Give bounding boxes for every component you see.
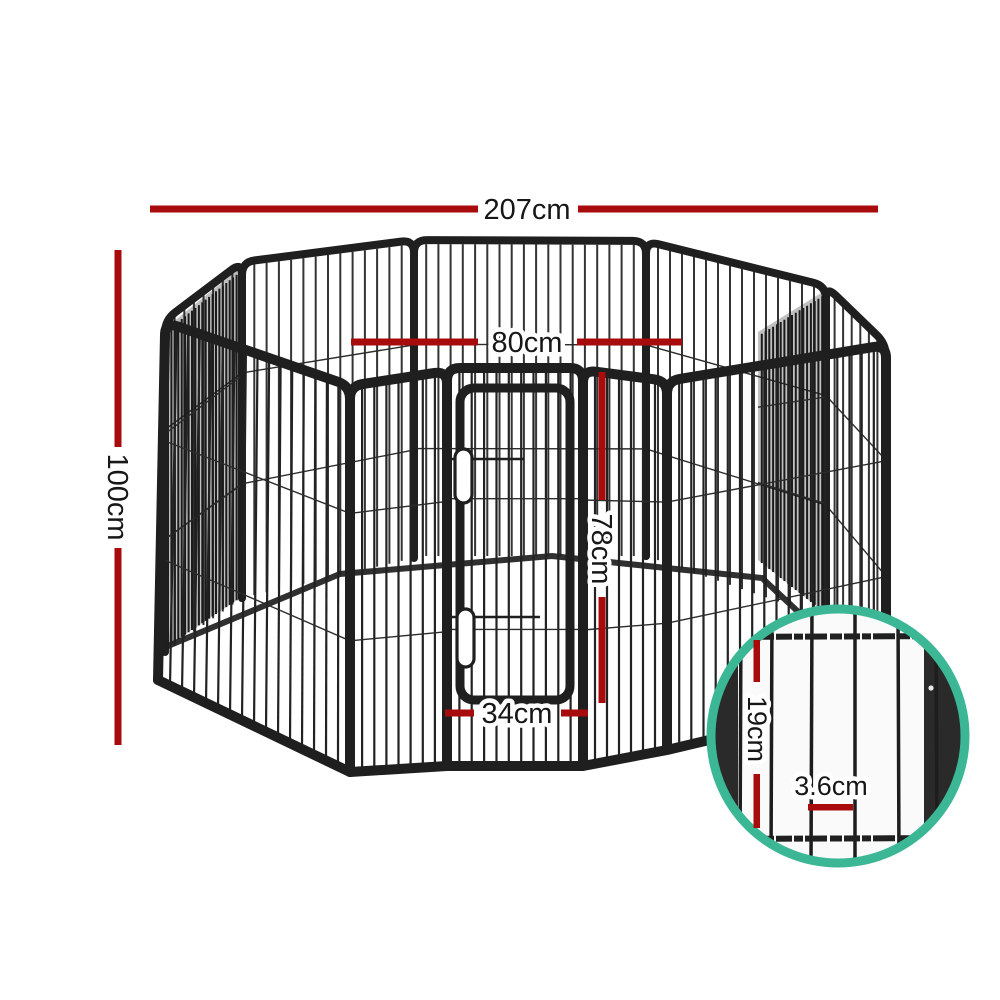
- detail-wire-gap-label: 3.6cm: [794, 771, 868, 801]
- playpen-dimension-diagram: 207cm 100cm 80cm 78cm 34cm: [0, 0, 1000, 1000]
- dim-door-height: 78cm: [585, 372, 617, 703]
- dim-line: [754, 640, 761, 682]
- dim-panel-width: 80cm: [351, 327, 682, 359]
- detail-rail-spacing-label: 19cm: [742, 696, 772, 762]
- door-frame: [460, 388, 570, 700]
- diagram-canvas: 207cm 100cm 80cm 78cm 34cm: [0, 0, 1000, 1000]
- dim-line: [150, 206, 478, 213]
- detail-wire-bar: [936, 610, 937, 864]
- detail-rail-top: [708, 636, 968, 637]
- mesh-wire: [314, 378, 315, 755]
- detail-rail-bottom: [708, 838, 968, 839]
- dim-line: [808, 804, 853, 811]
- total-width-label: 207cm: [483, 194, 570, 226]
- detail-wire-bar: [811, 606, 812, 866]
- mesh-wire: [326, 382, 327, 761]
- door-latch-bottom: [449, 609, 540, 667]
- dim-line: [599, 372, 606, 500]
- dim-line: [578, 206, 878, 213]
- dim-line: [561, 710, 588, 717]
- dim-line: [115, 548, 122, 745]
- dim-total-width: 207cm: [150, 194, 878, 226]
- dim-line: [115, 250, 122, 447]
- dim-total-height: 100cm: [101, 250, 133, 745]
- door-width-label: 34cm: [482, 698, 553, 730]
- dim-line: [577, 339, 682, 346]
- dim-line: [445, 710, 474, 717]
- detail-zoom-circle: 19cm 3.6cm: [686, 598, 978, 876]
- dim-line: [754, 774, 761, 828]
- mesh-wire: [302, 374, 304, 749]
- dim-line: [599, 597, 606, 703]
- panel-width-label: 80cm: [492, 327, 563, 359]
- latch-handle: [455, 449, 472, 503]
- door-height-label: 78cm: [585, 514, 617, 585]
- detail-wire-bar: [898, 608, 899, 864]
- latch-handle: [457, 609, 474, 667]
- total-height-label: 100cm: [101, 453, 133, 540]
- frame-highlight-speck: [928, 685, 933, 690]
- dim-line: [351, 339, 478, 346]
- detail-frame-right: [924, 598, 978, 876]
